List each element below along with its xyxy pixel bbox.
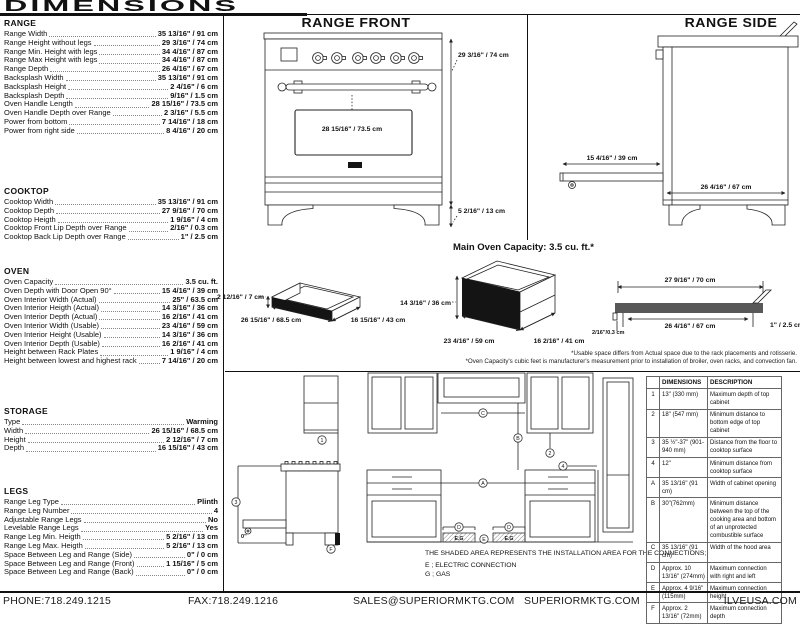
spec-section-cooktop: COOKTOPCooktop Width35 13/16" / 91 cmCoo… xyxy=(4,186,218,242)
dotted-leader xyxy=(84,522,206,523)
spec-row: Cooktop Back Lip Depth over Range1" / 2.… xyxy=(4,233,218,242)
dotted-leader xyxy=(101,311,160,312)
dotted-leader xyxy=(68,89,168,90)
logo-plate xyxy=(348,162,362,168)
dotted-leader xyxy=(61,504,195,505)
connection-area-left: E.G xyxy=(443,533,475,542)
description-column-header: DESCRIPTION xyxy=(708,377,782,389)
dotted-leader xyxy=(50,71,160,72)
range-front-drawing: 28 15/16" / 73.5 cm 29 3/16" / 74 cm 5 2… xyxy=(255,15,525,240)
dotted-leader xyxy=(71,513,211,514)
front-lip-shape xyxy=(613,313,617,320)
dimensions-table: DIMENSIONS DESCRIPTION 113" (330 mm)Maxi… xyxy=(646,376,782,624)
handle-length-label: 28 15/16" / 73.5 cm xyxy=(322,126,382,133)
spec-label: Cooktop Back Lip Depth over Range xyxy=(4,233,126,242)
footnote-usable-space: *Usable space differs from Actual space … xyxy=(466,350,798,358)
dimensions-spec-sheet: { "title": "DIMENSIONS", "specs": { "sec… xyxy=(0,0,800,610)
marker-1: 1 xyxy=(318,436,326,444)
footnote-oven-capacity: *Oven Capacity's cubic feet is manufactu… xyxy=(466,358,798,366)
range-side-small xyxy=(243,462,340,546)
svg-text:D: D xyxy=(507,525,511,531)
dim-table-row: DApprox. 10 13/16" (274mm)Maximum connec… xyxy=(647,563,782,583)
svg-text:26 15/16" / 68.5 cm: 26 15/16" / 68.5 cm xyxy=(241,317,301,324)
spec-row: Depth16 15/16" / 43 cm xyxy=(4,444,218,453)
footer-website: SUPERIORMKTG.COM xyxy=(524,595,640,607)
svg-text:5 2/16" / 13 cm: 5 2/16" / 13 cm xyxy=(458,208,505,215)
svg-text:D: D xyxy=(457,525,461,531)
section-title: STORAGE xyxy=(4,406,218,416)
row-dimension: 35 13/16" (91 cm) xyxy=(660,542,708,562)
row-description: Minimum distance from cooktop surface xyxy=(708,458,782,478)
row-id: F xyxy=(647,603,660,623)
row-description: Width of the hood area xyxy=(708,542,782,562)
svg-text:14 3/16" / 36 cm: 14 3/16" / 36 cm xyxy=(400,300,451,307)
dim-table-row: 113" (330 mm)Maximum depth of top cabine… xyxy=(647,389,782,409)
open-door xyxy=(560,173,663,189)
dotted-leader xyxy=(99,63,160,64)
spec-label: Power from right side xyxy=(4,127,75,136)
control-display xyxy=(281,48,297,61)
marker-d-right: D xyxy=(493,523,525,531)
dotted-leader xyxy=(102,346,160,347)
row-id: 3 xyxy=(647,437,660,457)
connection-area-right: E.G xyxy=(493,533,525,542)
zero-clearance-label: 0" xyxy=(241,534,247,540)
plinth-legs xyxy=(268,205,439,225)
dimensions-column-header: DIMENSIONS xyxy=(660,377,708,389)
dotted-leader xyxy=(104,337,160,338)
id-column-header xyxy=(647,377,660,389)
back-lip-shape xyxy=(753,290,771,303)
svg-text:E: E xyxy=(482,537,486,543)
dotted-leader xyxy=(99,54,160,55)
spec-section-storage: STORAGETypeWarmingWidth26 15/16" / 68.5 … xyxy=(4,406,218,453)
spec-value: 7 14/16" / 20 cm xyxy=(162,357,218,366)
installation-side-view: 1 0" 3 F xyxy=(228,372,353,560)
door-depth-dimension: 15 4/16" / 39 cm xyxy=(563,155,660,164)
row-dimension: 35 ½"-37" (901-940 mm) xyxy=(660,437,708,457)
dim-table-row: 412"Minimum distance from cooktop surfac… xyxy=(647,458,782,478)
dotted-leader xyxy=(55,204,156,205)
svg-text:26 4/16" / 67 cm: 26 4/16" / 67 cm xyxy=(701,184,752,191)
drawer-height-dimension: 2 12/16" / 7 cm xyxy=(217,294,268,308)
dotted-leader xyxy=(113,115,162,116)
row-description: Minimum distance between the top of the … xyxy=(708,498,782,542)
row-dimension: 12" xyxy=(660,458,708,478)
spec-section-range: RANGERange Width35 13/16" / 91 cmRange H… xyxy=(4,18,218,136)
cooktop-bar xyxy=(615,303,763,313)
dim-table-row: 335 ½"-37" (901-940 mm)Distance from the… xyxy=(647,437,782,457)
svg-text:16 2/16" / 41 cm: 16 2/16" / 41 cm xyxy=(534,338,585,345)
svg-text:27 9/16" / 70 cm: 27 9/16" / 70 cm xyxy=(665,277,716,284)
svg-text:23 4/16" / 59 cm: 23 4/16" / 59 cm xyxy=(444,338,495,345)
svg-text:C: C xyxy=(481,411,485,417)
upper-right-cabinet xyxy=(527,373,593,433)
dim-table-row: 218" (547 mm)Minimum distance to bottom … xyxy=(647,409,782,437)
dotted-leader xyxy=(94,45,160,46)
dotted-leader xyxy=(25,433,149,434)
dotted-leader xyxy=(77,133,164,134)
svg-text:2: 2 xyxy=(549,451,552,457)
cooktop-top-width-dimension: 27 9/16" / 70 cm xyxy=(618,277,763,293)
row-dimension: 30"(762mm) xyxy=(660,498,708,542)
dim-table-row: A35 13/16" (91 cm)Width of cabinet openi… xyxy=(647,478,782,498)
dim-table-row: B30"(762mm)Minimum distance between the … xyxy=(647,498,782,542)
marker-2: 2 xyxy=(546,433,554,457)
marker-4: 4 xyxy=(559,462,597,470)
dotted-leader xyxy=(99,302,171,303)
svg-text:29 3/16" / 74 cm: 29 3/16" / 74 cm xyxy=(458,52,509,59)
section-title: RANGE xyxy=(4,18,218,28)
svg-text:A: A xyxy=(481,481,485,487)
backsplash xyxy=(264,33,442,39)
spec-value: 8 4/16" / 20 cm xyxy=(166,127,218,136)
dotted-leader xyxy=(114,293,160,294)
svg-text:4: 4 xyxy=(562,464,565,470)
row-id: 1 xyxy=(647,389,660,409)
oven-height-dimension: 14 3/16" / 36 cm xyxy=(400,276,457,319)
marker-c: C xyxy=(441,409,525,417)
tall-right-cabinet xyxy=(603,378,633,532)
cooktop-profile-diagram: 27 9/16" / 70 cm 26 4/16" / 67 cm 1" / 2… xyxy=(590,270,800,340)
marker-a: A xyxy=(441,479,525,487)
row-description: Minimum distance to bottom edge of top c… xyxy=(708,409,782,437)
svg-text:15 4/16" / 39 cm: 15 4/16" / 39 cm xyxy=(587,155,638,162)
row-id: B xyxy=(647,498,660,542)
svg-text:E.G: E.G xyxy=(455,536,464,542)
spec-value: 16 15/16" / 43 cm xyxy=(158,444,218,453)
spec-section-oven: OVENOven Capacity3.5 cu. ft.Oven Depth w… xyxy=(4,266,218,366)
dotted-leader xyxy=(136,575,185,576)
divider-front-side-vertical xyxy=(527,15,528,240)
spec-row: Power from right side8 4/16" / 20 cm xyxy=(4,127,218,136)
row-id: 2 xyxy=(647,409,660,437)
spec-label: Space Between Leg and Range (Back) xyxy=(4,568,134,577)
base-left-cabinet xyxy=(367,470,441,542)
back-lip-label: 1" / 2.5 cm xyxy=(770,322,800,329)
dotted-leader xyxy=(129,231,169,232)
dotted-leader xyxy=(28,442,164,443)
dotted-leader xyxy=(101,328,160,329)
row-id: 4 xyxy=(647,458,660,478)
cooktop-slab xyxy=(658,36,798,47)
upper-left-cabinet xyxy=(368,373,437,433)
dotted-leader xyxy=(56,213,160,214)
svg-text:2 12/16" / 7 cm: 2 12/16" / 7 cm xyxy=(217,294,264,301)
marker-e: E xyxy=(480,535,488,543)
row-id: E xyxy=(647,583,660,603)
front-lip-dimension: 2/16"/0.3 cm xyxy=(592,321,625,336)
svg-text:B: B xyxy=(516,436,520,442)
leg-height-dimension: 5 2/16" / 13 cm xyxy=(451,205,505,227)
base-right-cabinet xyxy=(525,470,595,542)
svg-text:F: F xyxy=(329,547,332,553)
installation-front-view: C B A 2 4 D D E.G E.G E xyxy=(360,372,650,548)
dotted-leader xyxy=(83,539,164,540)
marker-f: F xyxy=(327,545,335,553)
spec-value: 0" / 0 cm xyxy=(187,568,218,577)
footer-phone: PHONE:718.249.1215 xyxy=(3,595,111,607)
oven-interior-diagram: 14 3/16" / 36 cm 23 4/16" / 59 cm 16 2/1… xyxy=(395,255,610,360)
row-dimension: Approx. 10 13/16" (274mm) xyxy=(660,563,708,583)
spec-row: Height between lowest and highest rack7 … xyxy=(4,357,218,366)
height-dimension: 29 3/16" / 74 cm xyxy=(451,39,509,205)
row-description: Maximum connection with right and left xyxy=(708,563,782,583)
oven-capacity-heading: Main Oven Capacity: 3.5 cu. ft.* xyxy=(453,242,594,253)
dotted-leader xyxy=(134,557,185,558)
svg-text:2/16"/0.3 cm: 2/16"/0.3 cm xyxy=(592,330,625,336)
svg-text:1: 1 xyxy=(321,438,324,444)
row-id: D xyxy=(647,563,660,583)
spec-row: Space Between Leg and Range (Back)0" / 0… xyxy=(4,568,218,577)
section-title: COOKTOP xyxy=(4,186,218,196)
footer-rule xyxy=(0,591,800,593)
footnotes: *Usable space differs from Actual space … xyxy=(466,350,798,366)
svg-text:26 4/16" / 67 cm: 26 4/16" / 67 cm xyxy=(665,323,716,330)
spec-label: Depth xyxy=(4,444,24,453)
svg-text:E.G: E.G xyxy=(505,536,514,542)
row-description: Maximum depth of top cabinet xyxy=(708,389,782,409)
marker-3: 3 xyxy=(232,498,240,506)
dotted-leader xyxy=(69,124,160,125)
spec-value: 1" / 2.5 cm xyxy=(181,233,218,242)
marker-d-left: D xyxy=(443,523,475,531)
dotted-leader xyxy=(137,566,165,567)
range-side-drawing: 15 4/16" / 39 cm 26 4/16" / 67 cm xyxy=(530,15,800,240)
side-body xyxy=(663,47,788,205)
section-title: LEGS xyxy=(4,486,218,496)
row-id: A xyxy=(647,478,660,498)
dotted-leader xyxy=(66,80,156,81)
row-description: Width of cabinet opening xyxy=(708,478,782,498)
spec-label: Height between lowest and highest rack xyxy=(4,357,137,366)
dotted-leader xyxy=(139,363,160,364)
footer-fax: FAX:718.249.1216 xyxy=(188,595,278,607)
dimensions-table-header: DIMENSIONS DESCRIPTION xyxy=(647,377,782,389)
hood-box xyxy=(438,373,525,403)
plinth-legs-side xyxy=(669,205,785,225)
cooktop-inner-width-dimension: 26 4/16" / 67 cm xyxy=(623,313,753,330)
row-dimension: 18" (547 mm) xyxy=(660,409,708,437)
dotted-leader xyxy=(128,239,179,240)
row-dimension: 35 13/16" (91 cm) xyxy=(660,478,708,498)
section-title: OVEN xyxy=(4,266,218,276)
row-dimension: Approx. 4 9/16" (115mm) xyxy=(660,583,708,603)
dotted-leader xyxy=(26,451,156,452)
row-id: C xyxy=(647,542,660,562)
row-description: Distance from the floor to cooktop surfa… xyxy=(708,437,782,457)
top-cabinet xyxy=(304,376,338,433)
spec-section-legs: LEGSRange Leg TypePlinthRange Leg Number… xyxy=(4,486,218,577)
dim-table-row: C35 13/16" (91 cm)Width of the hood area xyxy=(647,542,782,562)
handle-edge xyxy=(656,50,663,59)
svg-text:3: 3 xyxy=(235,500,238,506)
footer-email: SALES@SUPERIORMKTG.COM xyxy=(353,595,515,607)
row-dimension: Approx. 2 13/16" (72mm) xyxy=(660,603,708,623)
page-title: DIMENSIONS xyxy=(4,0,239,14)
row-dimension: 13" (330 mm) xyxy=(660,389,708,409)
footer-brand-site: ILVEUSA.COM xyxy=(724,595,797,607)
dotted-leader xyxy=(99,319,160,320)
